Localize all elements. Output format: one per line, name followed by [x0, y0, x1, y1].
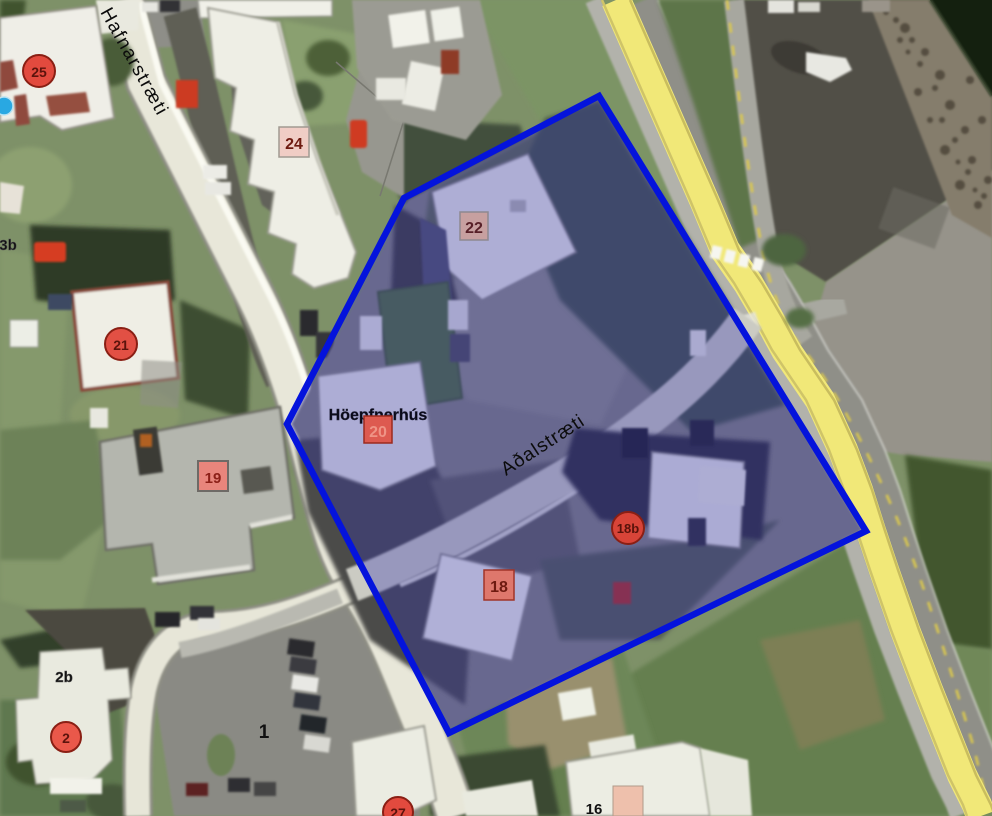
svg-text:25: 25	[31, 64, 47, 80]
svg-text:18b: 18b	[617, 521, 639, 536]
svg-text:22: 22	[465, 220, 483, 237]
svg-text:19: 19	[205, 470, 222, 487]
svg-text:3b: 3b	[0, 237, 17, 254]
svg-text:18: 18	[490, 579, 508, 596]
svg-text:21: 21	[113, 337, 129, 353]
svg-text:2b: 2b	[55, 669, 73, 686]
svg-text:24: 24	[285, 136, 303, 153]
svg-text:27: 27	[390, 805, 406, 816]
svg-text:1: 1	[259, 722, 270, 743]
svg-text:16: 16	[586, 801, 603, 816]
svg-text:20: 20	[369, 424, 387, 441]
svg-text:2: 2	[62, 730, 70, 746]
